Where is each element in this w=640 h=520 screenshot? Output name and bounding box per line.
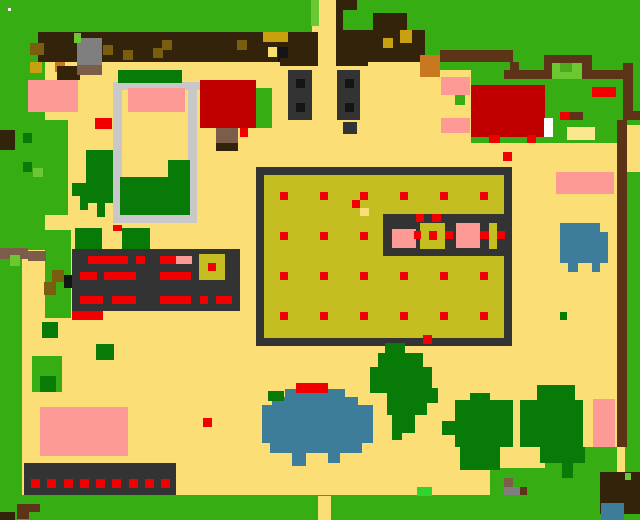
gravestone-right[interactable] (337, 70, 360, 120)
stall-red-1c[interactable] (160, 256, 176, 264)
inset-red-f (497, 231, 505, 239)
inset-red-b (432, 214, 441, 222)
apple-tree-green (256, 88, 272, 128)
tree-blob-c (42, 322, 58, 338)
fence-bar-b[interactable] (504, 70, 545, 79)
apple-tree-base (216, 143, 238, 151)
gravestone-right-base (343, 122, 357, 134)
tree-px-b (23, 162, 32, 172)
soil-path-edge-a (336, 0, 357, 10)
gate-panel-dark (560, 63, 572, 72)
tree1-g (392, 433, 402, 440)
axe-grip (520, 487, 527, 495)
field-crop-dot[interactable] (440, 192, 448, 200)
field-sand-px (360, 208, 369, 216)
creature-leg-b (592, 263, 600, 272)
stall-red-2b[interactable] (104, 272, 136, 280)
stump-gold-c (52, 270, 64, 282)
field-crop-dot[interactable] (360, 312, 368, 320)
stall-box-red (208, 263, 216, 271)
soil-end-gold (30, 62, 42, 73)
sand-bright-tr (567, 127, 595, 140)
field-crop-dot[interactable] (320, 192, 328, 200)
field-crop-dot[interactable] (480, 272, 488, 280)
stand-berry-dot[interactable] (161, 479, 170, 488)
log-left-b (28, 251, 46, 261)
stand-berry-dot[interactable] (96, 479, 105, 488)
soil-yellow-px (268, 47, 277, 57)
item-red-tr[interactable] (560, 112, 570, 120)
axe-head[interactable] (504, 487, 520, 495)
apple-tree-canopy[interactable] (200, 80, 256, 128)
stand-berry-dot[interactable] (80, 479, 89, 488)
grass-right-border (625, 172, 640, 472)
inset-red-a (416, 214, 424, 222)
barn-red-px-a (489, 135, 500, 143)
soil-speck-e (237, 40, 247, 50)
tree-stem-a (80, 196, 88, 210)
stump-gold-d (44, 282, 56, 295)
pond-lower (270, 443, 362, 453)
field-crop-dot[interactable] (320, 232, 328, 240)
soil-speck-a (103, 45, 113, 55)
tree2-a[interactable] (455, 400, 513, 447)
gravestone-left[interactable] (288, 70, 312, 120)
bush-in-pen-a (168, 160, 190, 215)
tree3-a (537, 385, 575, 400)
soil-gold-bar (263, 32, 288, 42)
apple-tree-trunk (216, 128, 238, 143)
grave-bar-a (280, 58, 318, 66)
gravestone-left-hole-a (296, 79, 305, 88)
field-crop-dot[interactable] (320, 272, 328, 280)
tree1-b (378, 353, 423, 367)
pink-bed-top-left (28, 80, 78, 112)
bush-above-pen (118, 70, 182, 83)
red-bar-top-right[interactable] (592, 87, 616, 97)
soil-end-darkgold (30, 43, 44, 55)
stall-red-stub (72, 311, 103, 320)
pink-bed-tr-b (441, 118, 470, 133)
inset-red-d (445, 231, 453, 239)
gravestone-right-hole-b (345, 103, 354, 112)
inset-pink-a (392, 229, 416, 248)
gravestone-right-hole-a (345, 79, 354, 88)
field-crop-dot[interactable] (440, 272, 448, 280)
field-crop-dot[interactable] (440, 312, 448, 320)
soil-arm (407, 43, 420, 55)
grass-light-px-a (33, 168, 43, 177)
stall-red-3b[interactable] (112, 296, 136, 304)
pond-nub-b (328, 452, 340, 463)
stall-red-2c[interactable] (160, 272, 191, 280)
tree2-d (470, 393, 490, 400)
grass-top (0, 0, 312, 32)
field-soil (264, 175, 504, 338)
soil-speck-d (162, 40, 172, 50)
pink-bed-bottom-left (40, 407, 128, 456)
stall-pink-1[interactable] (176, 256, 192, 264)
tree1-f (392, 415, 415, 433)
creature-ext (600, 232, 608, 263)
orange-block (420, 55, 440, 77)
pink-bar-right (556, 172, 614, 194)
stump-gold-a (383, 38, 393, 48)
red-px-bottom-left[interactable] (203, 418, 212, 427)
tree-px-pond (268, 391, 284, 401)
tree-stem-b (97, 198, 105, 217)
pond-nub-a (292, 453, 306, 466)
bush-in-pen-b (120, 177, 168, 215)
white-dot (8, 8, 11, 11)
field-crop-dot[interactable] (360, 192, 368, 200)
field-crop-dot[interactable] (280, 272, 288, 280)
pink-bed-bottom-right (593, 399, 615, 447)
tree-cluster-left-b (72, 183, 87, 196)
apple-drop[interactable] (240, 128, 248, 137)
tree-blob-a (40, 376, 56, 392)
stall-red-3c[interactable] (160, 296, 191, 304)
field-red-extra (352, 200, 360, 208)
fence-post-far-right (623, 63, 633, 111)
axe-handle[interactable] (504, 478, 513, 487)
grass-light-px-d (625, 473, 631, 480)
soil-path-edge-b (336, 10, 343, 32)
grass-light-stripe-top (311, 0, 319, 26)
soil-speck-b (123, 50, 133, 60)
tree-cluster-left-a (86, 150, 113, 203)
field-crop-dot[interactable] (280, 232, 288, 240)
sand-gap-bottom (318, 496, 331, 520)
grass-px-tr (455, 95, 465, 105)
inset-bar (489, 223, 497, 249)
tree-px-a (23, 133, 32, 143)
field-crop-dot[interactable] (480, 312, 488, 320)
fence-bar-d (623, 111, 640, 120)
grass-left-b (45, 120, 68, 215)
stall-red-1a[interactable] (88, 256, 128, 264)
field-crop-dot[interactable] (400, 272, 408, 280)
field-crop-dot[interactable] (400, 312, 408, 320)
bush-above-stall-b (122, 228, 150, 249)
log-bottom-left-a (17, 504, 40, 512)
gravestone-left-hole-b (296, 103, 305, 112)
field-crop-dot[interactable] (360, 232, 368, 240)
stall-red-3e[interactable] (216, 296, 232, 304)
pen-fence-bottom[interactable] (113, 214, 197, 223)
field-crop-dot[interactable] (360, 272, 368, 280)
stall-red-3a[interactable] (80, 296, 103, 304)
tree1-e (387, 393, 427, 415)
stand-berry-dot[interactable] (129, 479, 138, 488)
stand-berry-dot[interactable] (112, 479, 121, 488)
inset-red-c (414, 231, 421, 239)
barn[interactable] (471, 85, 545, 137)
tree3-d (562, 463, 573, 478)
pink-bed-tr-a (441, 77, 470, 95)
tree2-c (460, 447, 500, 470)
red-px-above-stall (113, 225, 122, 231)
creature-body[interactable] (560, 223, 600, 263)
red-item-left[interactable] (95, 118, 112, 129)
log-bottom-left-b (17, 512, 29, 519)
stall-red-1b[interactable] (136, 256, 145, 264)
creature-leg-a (568, 263, 578, 272)
game-map-viewport[interactable] (0, 0, 640, 520)
field-crop-dot[interactable] (320, 312, 328, 320)
stall-red-2a[interactable] (80, 272, 97, 280)
stump-gold-b (400, 30, 412, 43)
grass-light-px-c (10, 255, 20, 266)
stand-berry-dot[interactable] (145, 479, 154, 488)
stand-berry-dot[interactable] (64, 479, 73, 488)
stall-red-3d[interactable] (200, 296, 208, 304)
pond-upper (272, 397, 358, 405)
fence-bar-c[interactable] (591, 70, 623, 79)
stand-berry-dot[interactable] (31, 479, 40, 488)
field-crop-dot[interactable] (480, 192, 488, 200)
stand-berry-dot[interactable] (47, 479, 56, 488)
tree-px-right (560, 312, 567, 320)
tree2-b (442, 421, 455, 435)
pink-bed-pen (128, 88, 185, 112)
fence-stub (510, 62, 519, 71)
field-crop-dot[interactable] (280, 192, 288, 200)
barn-red-px-b (527, 135, 536, 143)
bush-above-stall-a (75, 228, 102, 249)
pond-red-bar[interactable] (296, 383, 328, 393)
item-brown-tr[interactable] (570, 112, 583, 120)
pond-main[interactable] (262, 405, 373, 443)
inset-pink-b (456, 223, 480, 248)
soil-block-left-edge (0, 130, 15, 150)
grave-bar-b (336, 58, 368, 66)
field-crop-dot[interactable] (280, 312, 288, 320)
tree3-b[interactable] (520, 400, 583, 447)
barn-door[interactable] (544, 118, 553, 137)
fence-red-px (423, 335, 432, 344)
water-bottom-right (601, 503, 624, 520)
fence-bar-a[interactable] (440, 50, 513, 62)
tree3-c (540, 447, 585, 463)
dirt-bottom-left (0, 512, 15, 520)
fence-vert-right[interactable] (617, 120, 627, 447)
red-item-below-barn[interactable] (503, 152, 512, 161)
field-crop-dot[interactable] (400, 192, 408, 200)
green-vivid-px (417, 487, 432, 496)
tree1-a (385, 343, 405, 353)
boulder-base (77, 65, 102, 75)
grass-light-px-b (74, 33, 81, 43)
inset-box-red (429, 231, 437, 240)
tree-blob-b (96, 344, 114, 360)
